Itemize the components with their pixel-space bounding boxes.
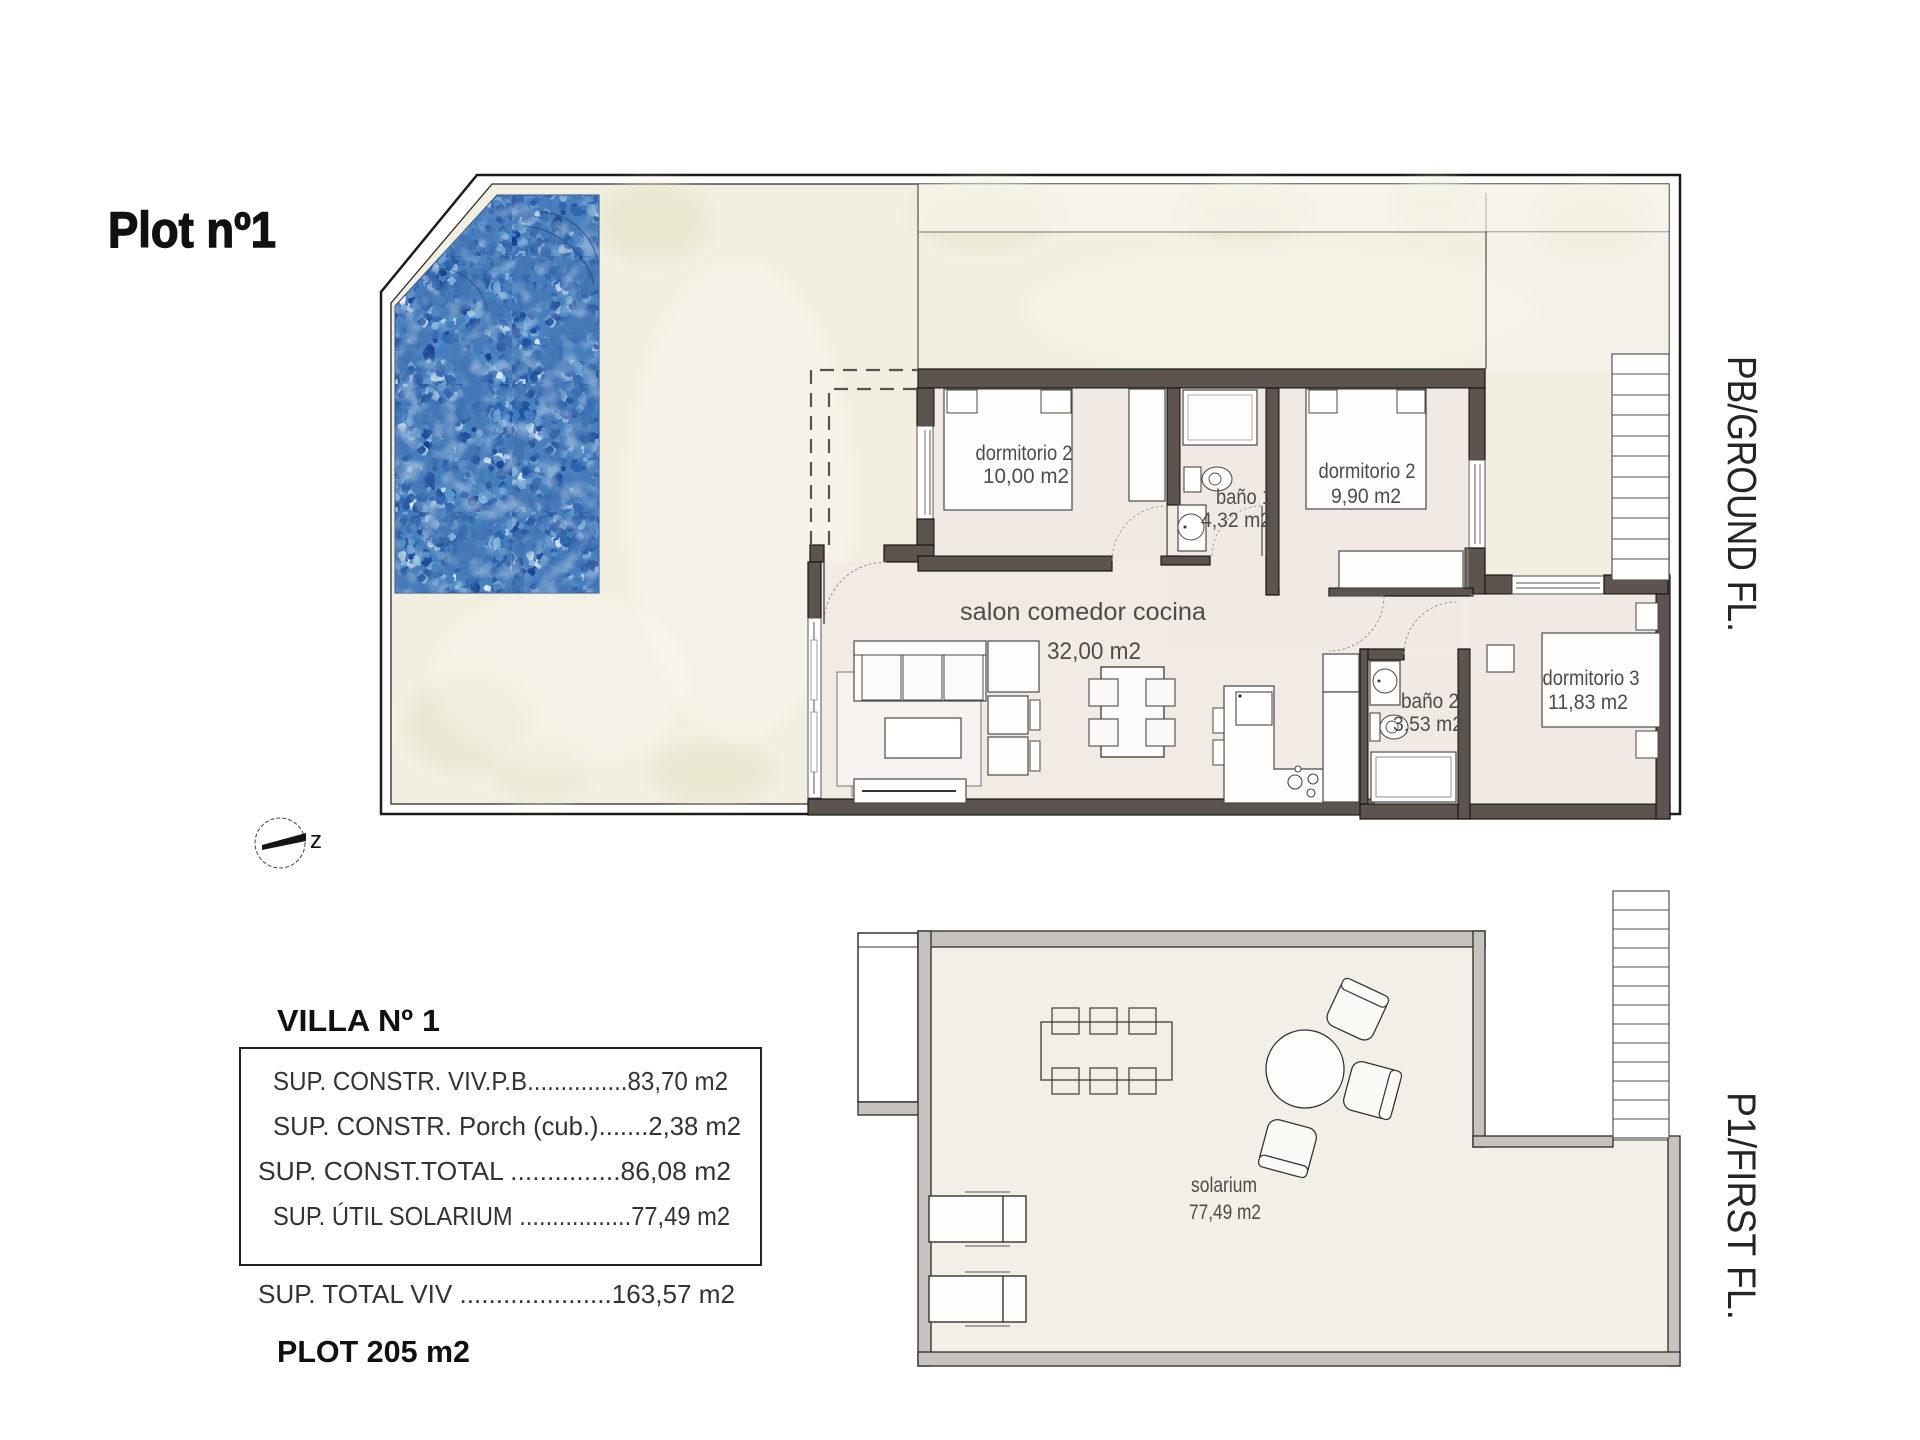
- svg-text:11,83 m2: 11,83 m2: [1548, 691, 1628, 714]
- svg-text:10,00 m2: 10,00 m2: [983, 465, 1069, 488]
- svg-text:PLOT 205 m2: PLOT 205 m2: [277, 1334, 470, 1369]
- svg-text:dormitorio 3: dormitorio 3: [1543, 667, 1640, 690]
- svg-text:baño 1: baño 1: [1216, 486, 1272, 509]
- svg-text:dormitorio 2: dormitorio 2: [1319, 460, 1416, 483]
- svg-text:VILLA Nº 1: VILLA Nº 1: [277, 1003, 440, 1038]
- svg-text:4,32 m2: 4,32 m2: [1201, 509, 1271, 532]
- svg-text:77,49 m2: 77,49 m2: [1189, 1201, 1261, 1224]
- svg-text:PB/GROUND FL.: PB/GROUND FL.: [1719, 356, 1765, 632]
- svg-text:3,53 m2: 3,53 m2: [1393, 713, 1463, 736]
- svg-text:SUP. TOTAL VIV ...............: SUP. TOTAL VIV .....................163,…: [258, 1279, 735, 1309]
- svg-text:9,90 m2: 9,90 m2: [1331, 485, 1401, 508]
- svg-text:z: z: [310, 827, 322, 854]
- svg-text:SUP. CONSTR. VIV.P.B..........: SUP. CONSTR. VIV.P.B...............83,70…: [273, 1066, 728, 1096]
- svg-text:solarium: solarium: [1191, 1174, 1257, 1197]
- svg-text:SUP. ÚTIL SOLARIUM ...........: SUP. ÚTIL SOLARIUM .................77,4…: [273, 1201, 730, 1231]
- svg-text:P1/FIRST FL.: P1/FIRST FL.: [1719, 1092, 1763, 1320]
- svg-text:Plot nº1: Plot nº1: [108, 202, 276, 258]
- svg-text:dormitorio 2: dormitorio 2: [976, 442, 1073, 465]
- svg-text:SUP. CONST.TOTAL .............: SUP. CONST.TOTAL ...............86,08 m2: [258, 1156, 731, 1186]
- svg-text:32,00 m2: 32,00 m2: [1047, 638, 1141, 665]
- svg-text:salon comedor cocina: salon comedor cocina: [960, 598, 1206, 626]
- svg-text:SUP. CONSTR. Porch (cub.).....: SUP. CONSTR. Porch (cub.).......2,38 m2: [273, 1111, 741, 1141]
- svg-text:baño 2: baño 2: [1401, 690, 1459, 713]
